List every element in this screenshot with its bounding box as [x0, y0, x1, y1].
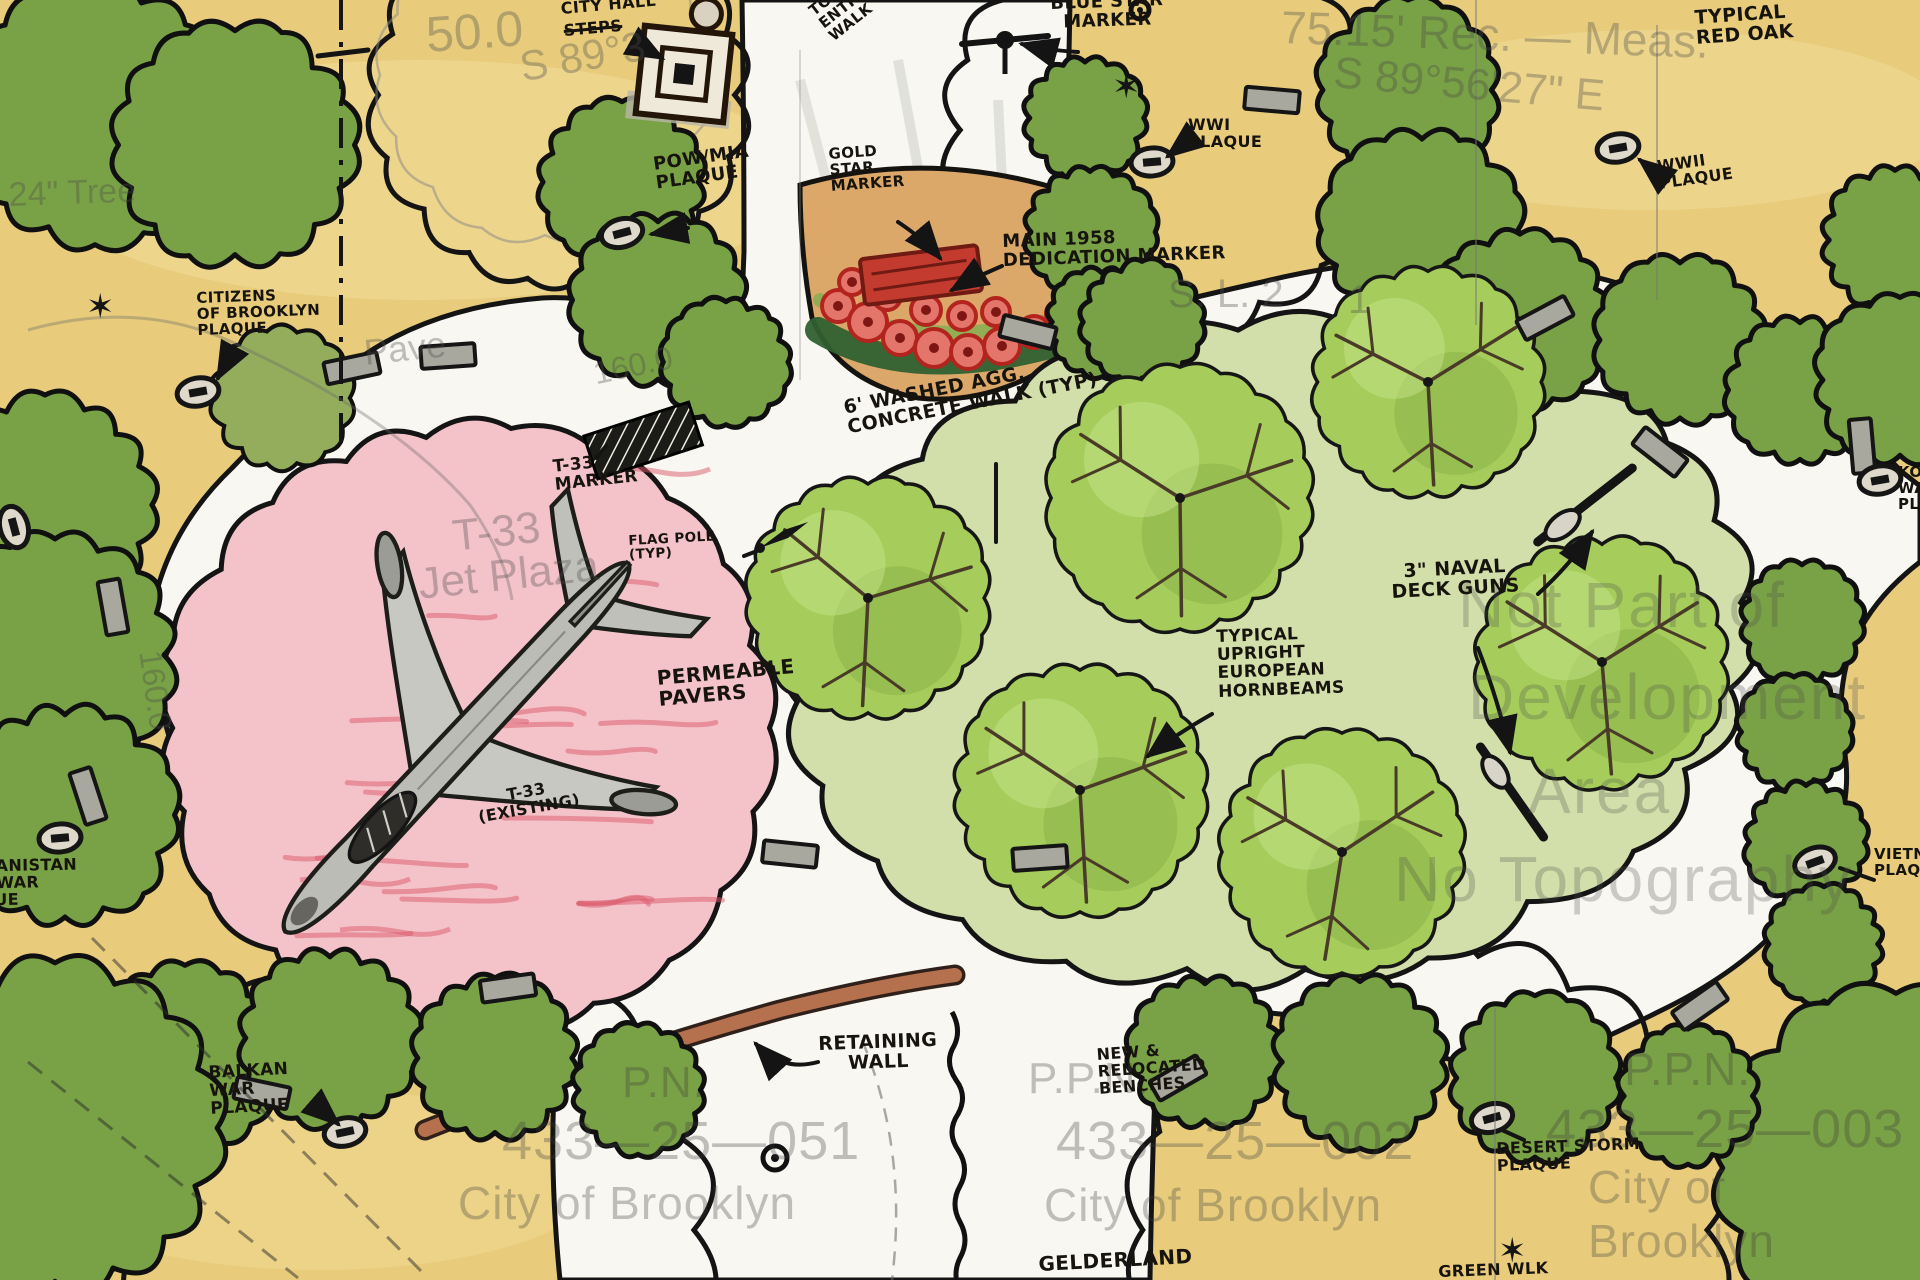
site-plan: ✶✶✶ 50.0S 89°324" Tree75.15' Rec. — Meas…: [0, 0, 1920, 1280]
paver-scribble: [429, 615, 496, 617]
paver-scribble: [402, 898, 517, 901]
hornbeam-tree-icon: [1312, 266, 1545, 498]
svg-text:✶: ✶: [1112, 67, 1141, 107]
flower-icon: [948, 302, 976, 330]
bench-icon: [762, 840, 818, 868]
bench-icon: [480, 973, 537, 1002]
bench-icon: [1012, 845, 1067, 871]
svg-text:✶: ✶: [86, 287, 115, 327]
plaque-icon: [1130, 146, 1174, 178]
hornbeam-tree-icon: [746, 477, 990, 719]
bench-icon: [420, 343, 475, 369]
flower-icon: [883, 321, 917, 355]
hornbeam-tree-icon: [1219, 729, 1465, 977]
hornbeam-tree-icon: [954, 664, 1207, 917]
plaque-icon: [38, 822, 82, 854]
paver-scribble: [601, 722, 716, 725]
paver-scribble: [297, 933, 411, 935]
flower-icon: [915, 329, 953, 367]
hornbeam-tree-icon: [1046, 364, 1313, 633]
hornbeam-tree-icon: [1475, 536, 1729, 790]
svg-text:✶: ✶: [1498, 1231, 1527, 1271]
plan-drawing: ✶✶✶: [0, 0, 1920, 1280]
tree-mass-icon: [1741, 560, 1865, 684]
flower-icon: [951, 335, 985, 369]
bench-icon: [1244, 87, 1300, 114]
